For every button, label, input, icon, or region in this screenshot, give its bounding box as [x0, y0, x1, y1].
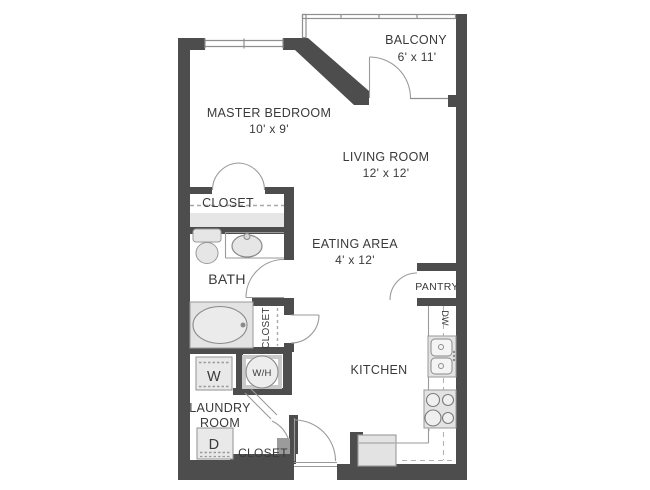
burner-front-right	[443, 413, 454, 424]
sink-faucet-dot-3	[453, 359, 455, 361]
dishwasher-label: DW	[440, 310, 450, 326]
master-bedroom-label: MASTER BEDROOM	[207, 106, 331, 120]
balcony-dims: 6' x 11'	[398, 50, 437, 64]
wall-bottom-right	[337, 464, 462, 480]
floor-plan: MASTER BEDROOM 10' x 9' BALCONY 6' x 11'…	[0, 0, 650, 490]
wall-diagonal	[295, 38, 369, 105]
entry-closet-stub	[289, 415, 298, 454]
kitchen-sink-bowl-bottom	[431, 358, 452, 374]
bath-door-arc	[246, 260, 284, 298]
kitchen-label: KITCHEN	[351, 363, 408, 377]
wall-right	[456, 14, 467, 480]
toilet-tank	[193, 229, 221, 242]
balcony-door-jamb	[448, 95, 458, 107]
laundry-south-wall	[233, 388, 290, 395]
hall-closet-label: CLOSET	[261, 307, 272, 349]
toilet-bowl	[196, 243, 218, 264]
hall-closet-right-wall-top	[284, 298, 294, 315]
pantry-top-wall	[417, 263, 456, 271]
bedroom-window	[205, 39, 283, 49]
dryer-label: D	[209, 437, 220, 453]
wall-top-a	[178, 38, 205, 50]
master-bedroom-dims: 10' x 9'	[249, 122, 289, 136]
eating-area-dims: 4' x 12'	[335, 253, 375, 267]
bath-right-wall	[284, 234, 294, 260]
wall-left	[178, 38, 190, 480]
master-closet-label: CLOSET	[202, 196, 254, 210]
closet-top-wall-left	[186, 187, 212, 194]
water-heater-label: W/H	[252, 368, 271, 379]
burner-front-left	[425, 410, 441, 426]
pantry-bottom-wall	[417, 298, 456, 306]
kitchen-fixtures	[358, 306, 456, 466]
bathtub-faucet	[241, 323, 246, 328]
burner-back-left	[427, 394, 440, 407]
closet-door-arc-left	[213, 163, 240, 190]
balcony-label: BALCONY	[385, 33, 447, 47]
pantry-door-arc	[390, 273, 417, 300]
laundry-door-arc	[272, 421, 288, 438]
bath-label: BATH	[208, 271, 246, 287]
living-room-dims: 12' x 12'	[363, 166, 410, 180]
closet-right-wall	[284, 187, 294, 234]
water-heater-left-wall	[236, 354, 243, 388]
closet-shelf	[190, 213, 284, 227]
floor-plan-drawing: MASTER BEDROOM 10' x 9' BALCONY 6' x 11'…	[0, 0, 650, 490]
room-labels: MASTER BEDROOM 10' x 9' BALCONY 6' x 11'…	[189, 33, 459, 460]
laundry-room-label-line1: LAUNDRY	[189, 401, 251, 415]
bath-sink-faucet	[244, 234, 250, 240]
entry-closet-label: CLOSET	[238, 446, 288, 460]
entry-door-arc	[295, 420, 336, 461]
pantry-label: PANTRY	[415, 281, 458, 293]
washer-label: W	[207, 369, 221, 385]
kitchen-sink-bowl-top	[431, 339, 452, 356]
eating-area-label: EATING AREA	[312, 237, 398, 251]
living-room-label: LIVING ROOM	[343, 150, 430, 164]
closet-door-arc-right	[238, 163, 265, 190]
sink-faucet-dot-2	[453, 355, 455, 357]
hall-closet-door-arc	[291, 315, 319, 343]
bathtub	[193, 307, 247, 344]
sink-faucet-dot-1	[453, 351, 455, 353]
upper-cabinet-dashed	[398, 306, 452, 461]
laundry-room-label-line2: ROOM	[200, 416, 240, 430]
burner-back-right	[443, 395, 454, 406]
refrigerator	[358, 435, 396, 466]
